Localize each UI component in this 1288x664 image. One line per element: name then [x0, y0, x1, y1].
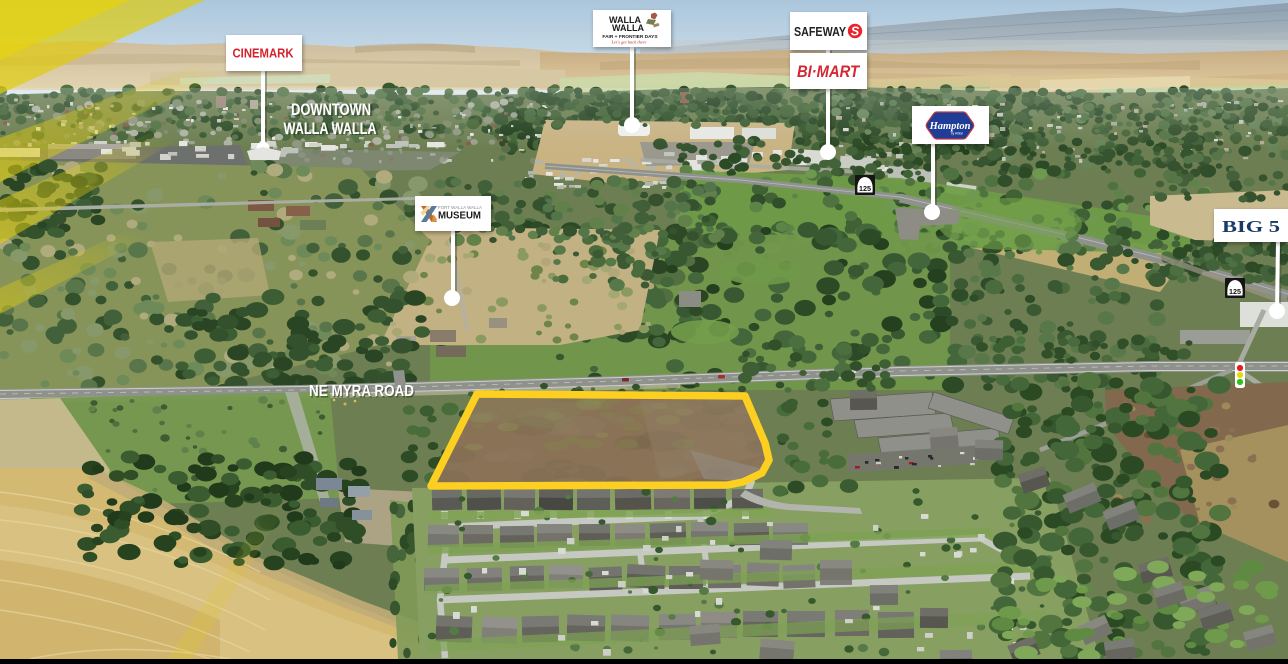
svg-text:Hampton: Hampton [929, 121, 971, 132]
svg-text:125: 125 [859, 184, 871, 193]
svg-text:S: S [851, 25, 860, 39]
svg-text:Let's get back there: Let's get back there [611, 40, 647, 45]
svg-text:NE MYRA ROAD: NE MYRA ROAD [309, 383, 414, 400]
svg-text:SAFEWAY: SAFEWAY [794, 24, 846, 39]
svg-text:WALLA: WALLA [612, 23, 644, 33]
svg-text:CINEMARK: CINEMARK [233, 47, 294, 61]
svg-text:BI·MART: BI·MART [797, 63, 861, 81]
svg-text:by Hilton: by Hilton [951, 132, 964, 136]
svg-text:BIG 5: BIG 5 [1222, 217, 1280, 236]
svg-text:DOWNTOWN: DOWNTOWN [291, 100, 371, 119]
svg-text:125: 125 [1229, 287, 1241, 296]
svg-text:WALLA WALLA: WALLA WALLA [284, 119, 377, 138]
svg-text:MUSEUM: MUSEUM [438, 210, 481, 222]
